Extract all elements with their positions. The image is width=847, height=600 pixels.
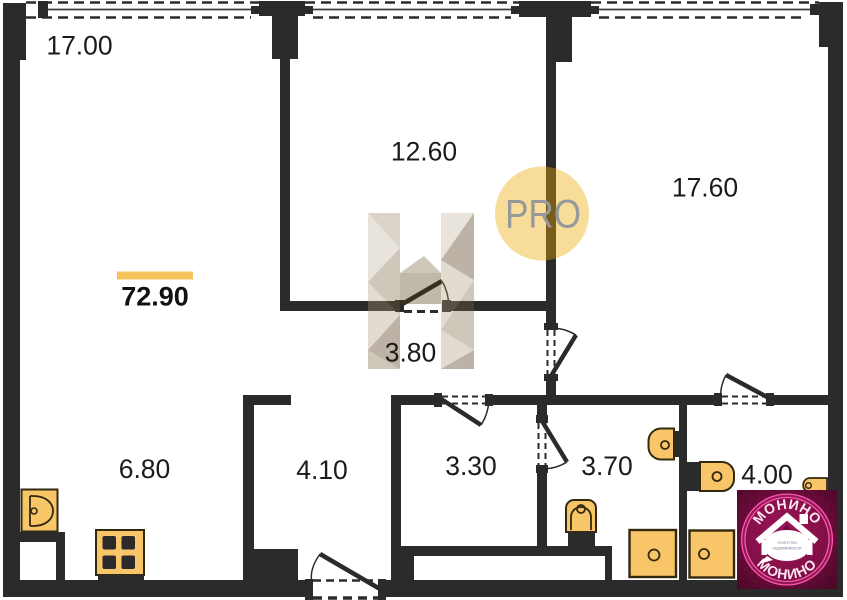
svg-text:17.00: 17.00 (46, 31, 112, 61)
svg-text:PRO: PRO (505, 191, 581, 236)
svg-text:17.60: 17.60 (672, 173, 738, 203)
svg-text:4.10: 4.10 (296, 455, 348, 485)
svg-text:недвижимости: недвижимости (773, 546, 803, 551)
svg-text:3.80: 3.80 (385, 338, 437, 368)
svg-text:Агентство: Агентство (777, 540, 797, 545)
svg-text:72.90: 72.90 (121, 282, 189, 312)
svg-text:3.30: 3.30 (445, 451, 497, 481)
svg-text:12.60: 12.60 (391, 137, 457, 167)
svg-text:3.70: 3.70 (581, 451, 633, 481)
svg-text:6.80: 6.80 (119, 454, 171, 484)
svg-text:4.00: 4.00 (741, 460, 793, 490)
